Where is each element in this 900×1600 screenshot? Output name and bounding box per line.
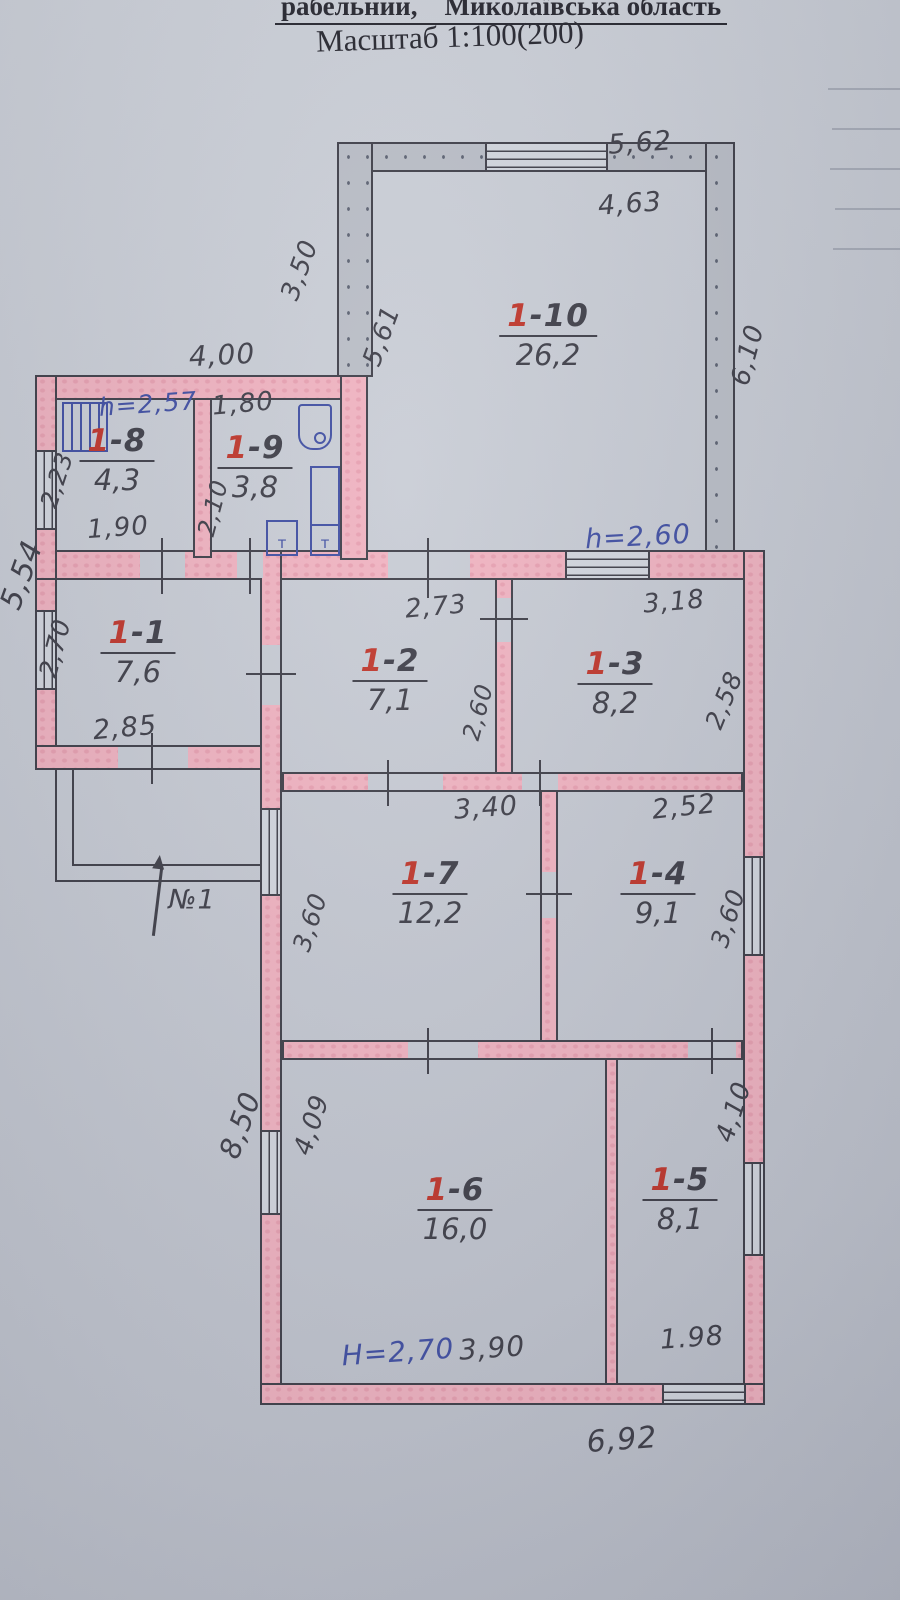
paper-line: [835, 208, 900, 210]
door-opening: [368, 774, 443, 790]
room-no: 1: [360, 643, 383, 679]
room-no: 1: [425, 1172, 448, 1208]
room-label-1-1: 1-1 7,6: [100, 615, 175, 689]
dim-r2-top: 2,73: [404, 589, 468, 624]
porch-line: [55, 770, 57, 882]
dim-south: 6,92: [585, 1420, 658, 1460]
porch-line: [72, 864, 262, 866]
paper-line: [832, 128, 900, 130]
room-label-1-5: 1-5 8,1: [642, 1162, 717, 1236]
sink-tap-icon: т: [268, 534, 296, 552]
dim-r1-bottom: 2,85: [92, 710, 159, 746]
door-opening: [542, 872, 556, 918]
door-tick: [387, 760, 389, 806]
window: [743, 1162, 765, 1256]
dim-r7-left: 3,60: [287, 889, 333, 955]
door-number-label: №1: [168, 885, 215, 916]
window: [260, 808, 282, 896]
door-tick: [161, 538, 163, 594]
dim-b10-top: 5,62: [607, 125, 673, 160]
paper-line: [830, 168, 900, 170]
dim-r4-top: 2,52: [650, 788, 717, 826]
door-opening: [262, 645, 280, 705]
room-no: 1: [87, 423, 110, 459]
room-no-suffix: -7: [423, 856, 459, 892]
dim-r3-top: 3,18: [642, 584, 706, 619]
room-area: 26,2: [499, 337, 597, 372]
paper-line: [833, 248, 900, 250]
room-label-1-2: 1-2 7,1: [352, 643, 427, 717]
room-area: 9,1: [620, 895, 695, 930]
wall-annex10-right: [705, 142, 735, 558]
room-no: 1: [650, 1162, 673, 1198]
room-no: 1: [225, 430, 248, 466]
room-area: 4,3: [79, 462, 154, 497]
room-label-1-7: 1-7 12,2: [392, 856, 467, 930]
dim-b10-left-outer: 3,50: [275, 236, 324, 304]
entrance-arrow-head: [152, 854, 166, 869]
room-area: 8,2: [577, 685, 652, 720]
window: [565, 550, 650, 580]
door-tick: [427, 1028, 429, 1074]
height-note-r10: h=2,60: [584, 519, 691, 555]
room-no-suffix: -4: [651, 856, 687, 892]
door-tick: [539, 760, 541, 806]
dim-r6-bottom: 3,90: [458, 1329, 526, 1367]
porch-line: [72, 770, 74, 866]
wall-partition-row2: [282, 1040, 743, 1060]
door-opening: [118, 747, 188, 768]
room-label-1-10: 1-10 26,2: [499, 298, 597, 372]
dim-r6-left: 4,09: [288, 1091, 336, 1159]
room-label-1-6: 1-6 16,0: [417, 1172, 492, 1246]
room-area: 7,1: [352, 682, 427, 717]
door-tick: [711, 1028, 713, 1074]
room-area: 12,2: [392, 895, 467, 930]
dim-r2-right: 2,60: [457, 681, 499, 744]
wall-annex-top: [35, 375, 368, 400]
room-label-1-3: 1-3 8,2: [577, 646, 652, 720]
window: [485, 142, 608, 172]
door-opening: [388, 552, 470, 578]
bathtub-tap-icon: т: [312, 534, 338, 552]
floor-plan-document: рабельний, Миколаївська область Масштаб …: [0, 0, 900, 1600]
door-tick: [246, 673, 296, 675]
dim-annex-top: 4,00: [188, 337, 256, 373]
room-label-1-8: 1-8 4,3: [79, 423, 154, 497]
window: [260, 1130, 282, 1215]
room-no-suffix: -6: [448, 1172, 484, 1208]
room-no: 1: [400, 856, 423, 892]
dim-r5-bottom: 1.98: [659, 1320, 725, 1355]
room-area: 7,6: [100, 654, 175, 689]
door-opening: [408, 1042, 478, 1058]
title-district: рабельний,: [281, 0, 418, 21]
door-tick: [526, 893, 572, 895]
room-no: 1: [507, 298, 530, 334]
wall-annex-right: [340, 375, 368, 560]
room-no-suffix: -1: [131, 615, 167, 651]
height-note-r6: H=2,70: [341, 1332, 456, 1373]
room-no-suffix: -10: [530, 298, 589, 334]
dim-r7-top: 3,40: [453, 790, 519, 825]
bathtub-icon: т: [310, 466, 340, 556]
room-no-suffix: -9: [248, 430, 284, 466]
room-label-1-4: 1-4 9,1: [620, 856, 695, 930]
room-area: 8,1: [642, 1201, 717, 1236]
entrance-arrow: [152, 868, 163, 936]
dim-b10-top-inner: 4,63: [597, 186, 663, 221]
dim-r9-top: 1,80: [211, 386, 275, 421]
paper-line: [828, 88, 900, 90]
room-no: 1: [628, 856, 651, 892]
height-note-r8: h=2,57: [98, 386, 198, 422]
door-tick: [427, 538, 429, 598]
dim-r3-right: 2,58: [699, 667, 748, 733]
room-no: 1: [585, 646, 608, 682]
door-tick: [249, 538, 251, 594]
toilet-flush-icon: [314, 432, 326, 444]
door-opening: [497, 598, 511, 642]
room-no-suffix: -8: [110, 423, 146, 459]
room-no-suffix: -3: [608, 646, 644, 682]
room-no-suffix: -2: [383, 643, 419, 679]
room-no: 1: [108, 615, 131, 651]
bathtub-divider: [312, 524, 338, 526]
dim-r8-bottom: 1,90: [86, 511, 150, 545]
door-tick: [480, 618, 528, 620]
wall-partition-r6-r5: [605, 1058, 618, 1385]
toilet-icon: [298, 404, 332, 450]
room-area: 16,0: [417, 1211, 492, 1246]
room-no-suffix: -5: [673, 1162, 709, 1198]
wall-partition-row1: [282, 772, 743, 792]
sink-icon: т: [266, 520, 298, 556]
window: [662, 1383, 746, 1405]
